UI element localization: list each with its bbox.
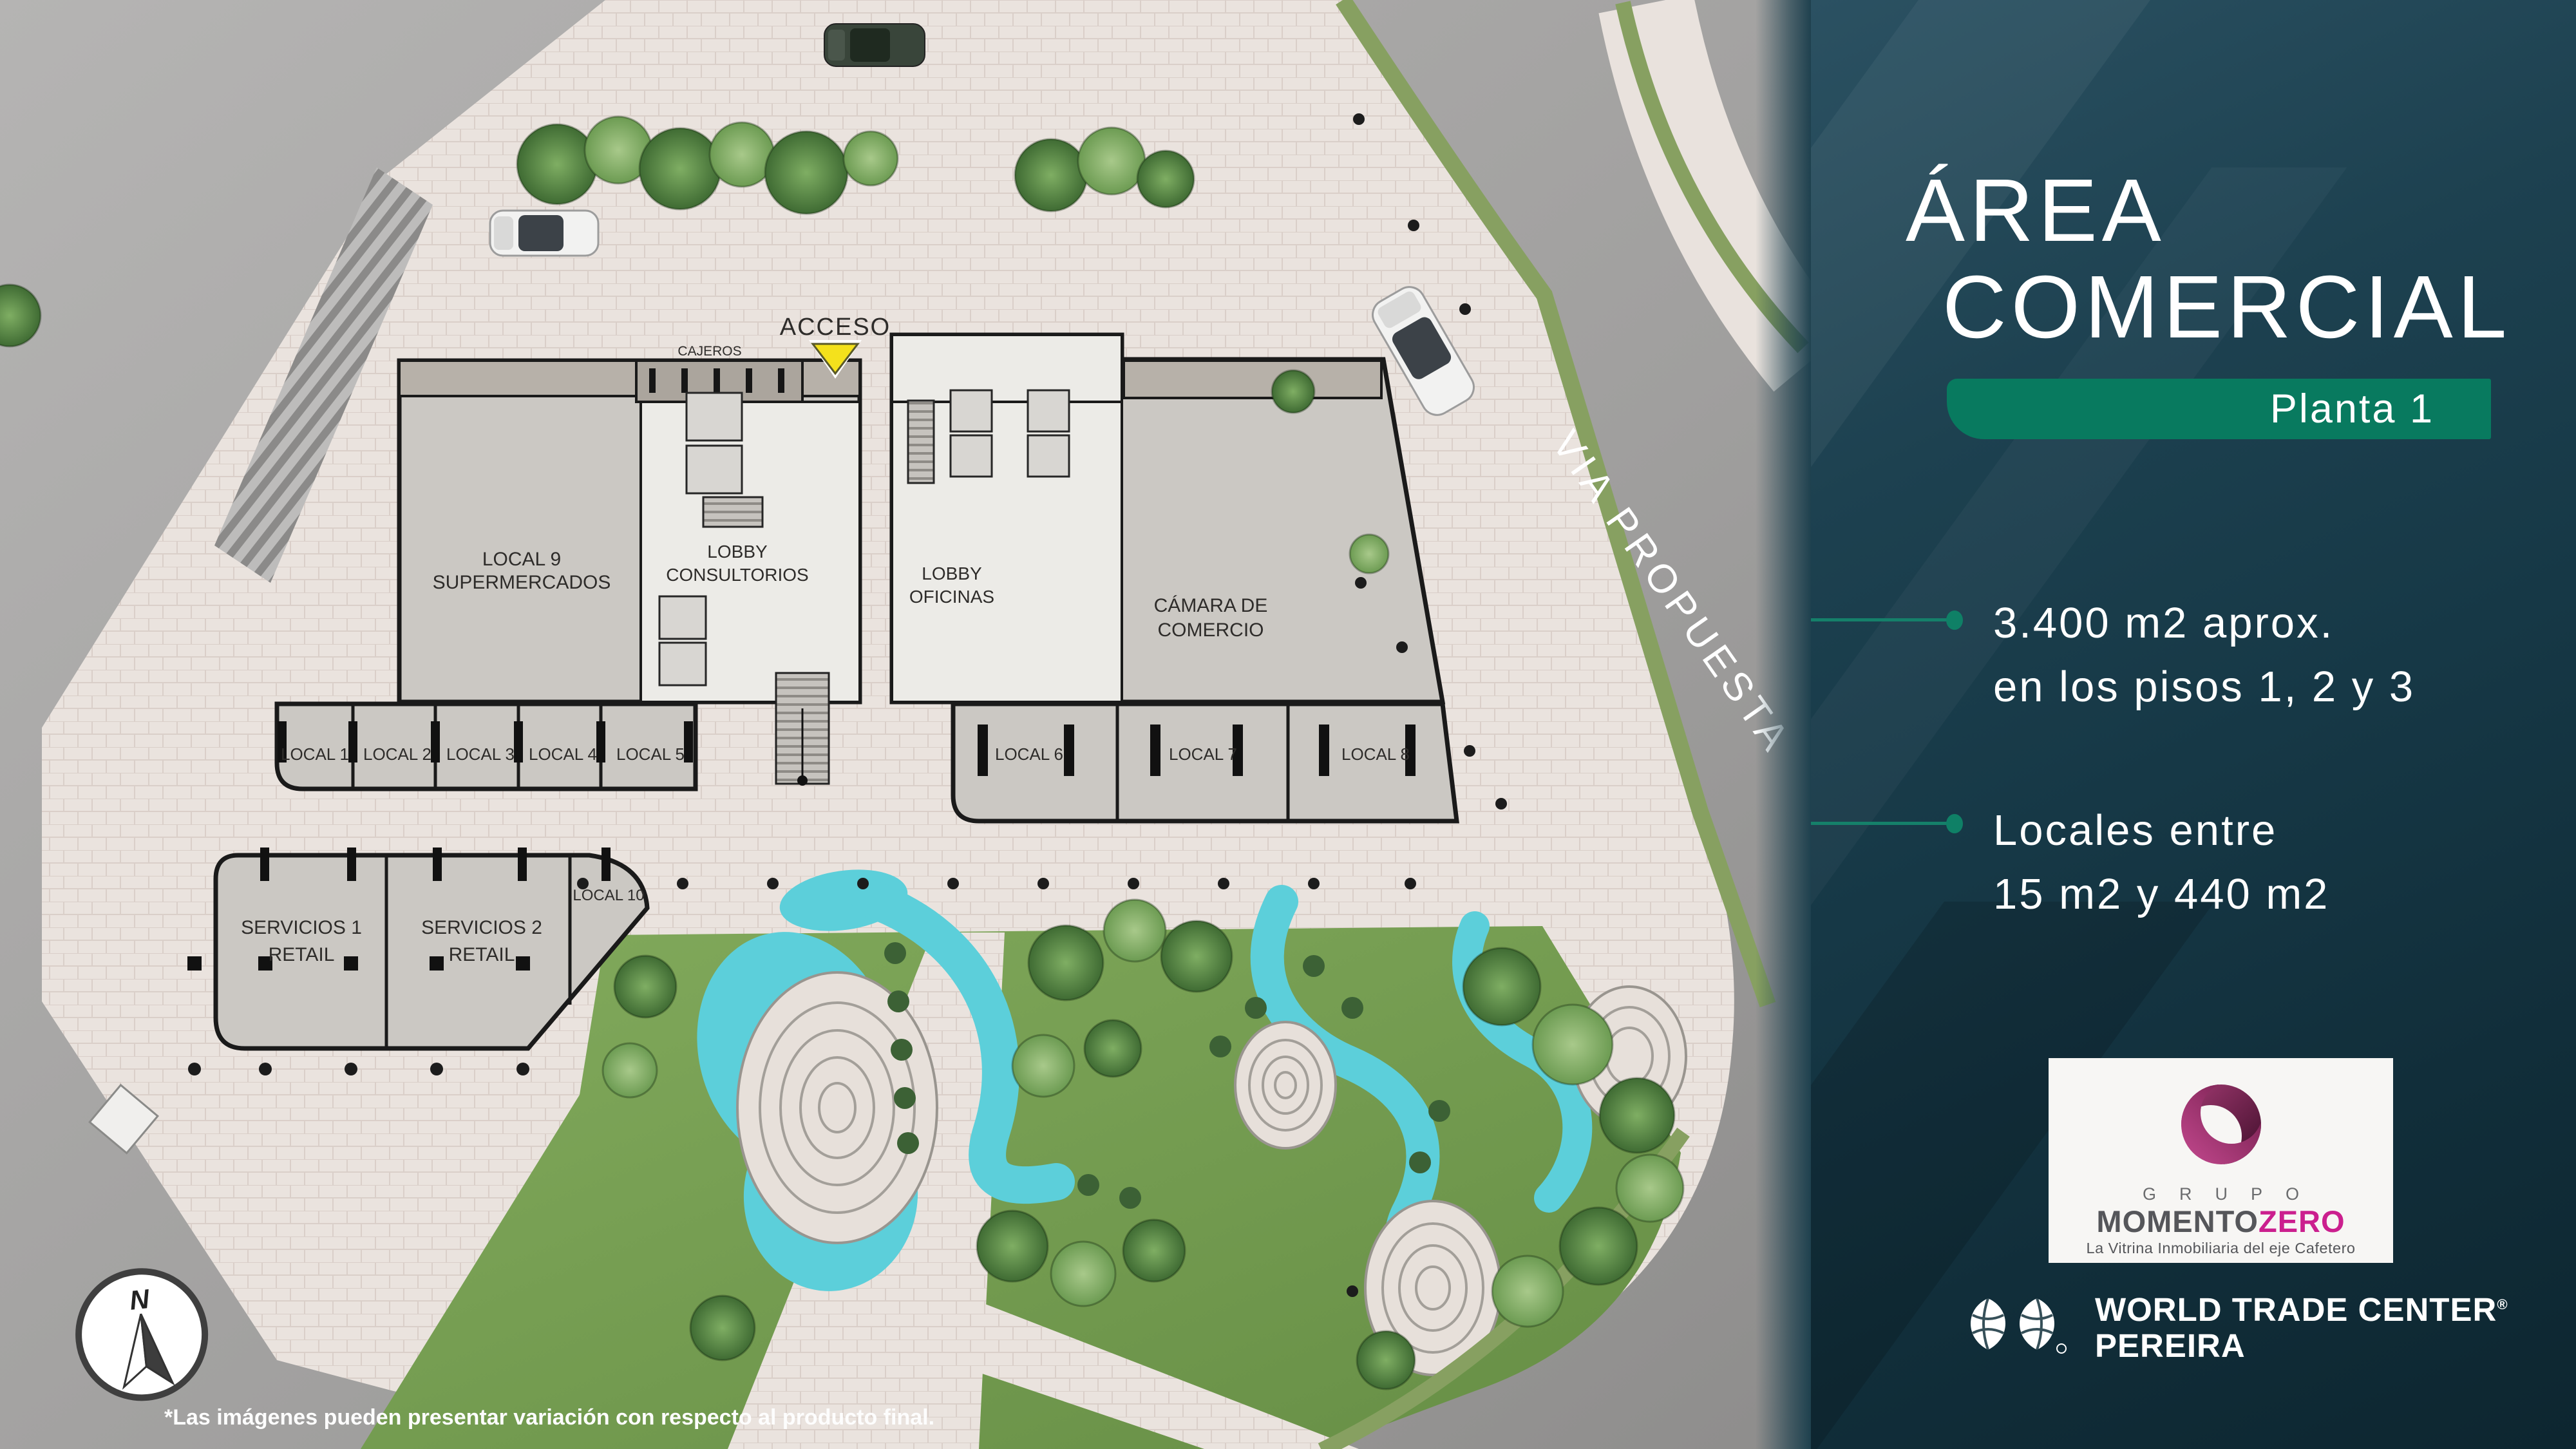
central-stair xyxy=(776,673,829,786)
bullet-locales-line2: 15 m2 y 440 m2 xyxy=(1993,862,2329,926)
building-left xyxy=(399,361,860,702)
label-acceso: ACCESO xyxy=(780,314,891,341)
bullet-area: 3.400 m2 aprox. en los pisos 1, 2 y 3 xyxy=(1993,591,2415,719)
label-local-1: LOCAL 1 xyxy=(281,744,349,764)
wtc-text: WORLD TRADE CENTER® PEREIRA xyxy=(2095,1287,2508,1364)
logo-zero: ZERO xyxy=(2259,1204,2345,1238)
car-white-top xyxy=(490,211,598,256)
label-local-6: LOCAL 6 xyxy=(995,744,1063,764)
label-local-8: LOCAL 8 xyxy=(1341,744,1410,764)
floor-badge: Planta 1 xyxy=(1947,379,2491,439)
label-camara-1: CÁMARA DE xyxy=(1154,595,1268,616)
wtc-reg: ® xyxy=(2497,1296,2508,1312)
disclaimer: *Las imágenes pueden presentar variación… xyxy=(164,1405,934,1430)
momento-zero-icon xyxy=(2166,1070,2276,1179)
label-lobby-oficinas-2: OFICINAS xyxy=(909,587,994,607)
label-servicios-2: SERVICIOS 2 xyxy=(421,917,542,938)
label-local-10: LOCAL 10 xyxy=(573,887,644,904)
label-lobby-oficinas-1: LOBBY xyxy=(922,563,982,583)
label-local9-2: SUPERMERCADOS xyxy=(433,572,611,593)
logo-momento: MOMENTO xyxy=(2096,1204,2259,1238)
bullet-dot xyxy=(1946,814,1963,833)
label-local-4: LOCAL 4 xyxy=(529,744,597,764)
panel-fade xyxy=(1756,0,1812,1449)
bullet-locales-line1: Locales entre xyxy=(1993,799,2329,862)
label-local-2: LOCAL 2 xyxy=(363,744,431,764)
label-cajeros: CAJEROS xyxy=(677,344,741,359)
car-green xyxy=(824,24,925,66)
wtc-logo: WORLD TRADE CENTER® PEREIRA xyxy=(1955,1287,2508,1364)
logo-tagline: La Vitrina Inmobiliaria del eje Cafetero xyxy=(2049,1240,2393,1257)
title-line-2: COMERCIAL xyxy=(1942,259,2576,355)
label-servicios-1-retail: RETAIL xyxy=(269,944,335,965)
title-line-1: ÁREA xyxy=(1906,162,2576,259)
bullet-area-line1: 3.400 m2 aprox. xyxy=(1993,591,2415,655)
label-local-7: LOCAL 7 xyxy=(1169,744,1237,764)
label-camara-2: COMERCIO xyxy=(1158,620,1264,641)
bullet-dot xyxy=(1946,611,1963,630)
wtc-city: PEREIRA xyxy=(2095,1328,2508,1364)
bullet-connector xyxy=(1811,822,1947,825)
label-local9-1: LOCAL 9 xyxy=(482,549,561,570)
info-panel: ÁREA COMERCIAL Planta 1 3.400 m2 aprox. … xyxy=(1811,0,2576,1449)
bullet-area-line2: en los pisos 1, 2 y 3 xyxy=(1993,655,2415,719)
momento-zero-logo: GRUPO MOMENTOZERO La Vitrina Inmobiliari… xyxy=(2049,1058,2393,1263)
label-local-5: LOCAL 5 xyxy=(616,744,685,764)
label-lobby-consultorios-1: LOBBY xyxy=(707,542,768,562)
site-plan: ACCESO CAJEROS LOBBY CONSULTORIOS LOBBY … xyxy=(0,0,1811,1449)
wtc-globes-icon xyxy=(1955,1296,2083,1355)
logo-grupo: GRUPO xyxy=(2049,1184,2393,1204)
bullet-locales: Locales entre 15 m2 y 440 m2 xyxy=(1993,799,2329,926)
label-servicios-2-retail: RETAIL xyxy=(449,944,515,965)
label-local-3: LOCAL 3 xyxy=(446,744,515,764)
page-title: ÁREA COMERCIAL xyxy=(1811,162,2576,355)
elevators-right xyxy=(908,390,1069,483)
wtc-name: WORLD TRADE CENTER xyxy=(2095,1291,2497,1328)
logo-wordmark: MOMENTOZERO xyxy=(2049,1204,2393,1239)
bullet-connector xyxy=(1811,618,1947,621)
label-servicios-1: SERVICIOS 1 xyxy=(241,917,362,938)
flyer: ACCESO CAJEROS LOBBY CONSULTORIOS LOBBY … xyxy=(0,0,2576,1449)
label-lobby-consultorios-2: CONSULTORIOS xyxy=(666,565,808,585)
